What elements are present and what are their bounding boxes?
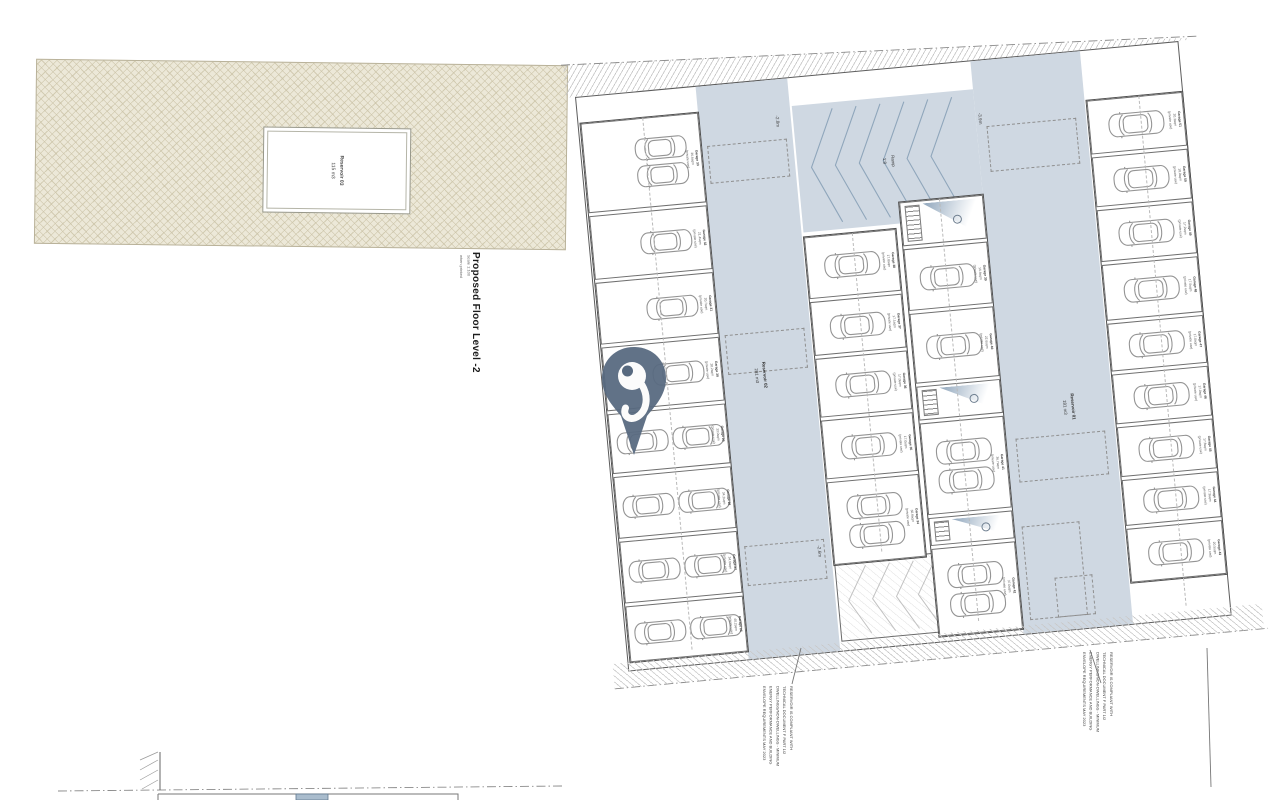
- garage-label: Garage 5018.0sqm(private use): [1172, 165, 1188, 185]
- car-icon: [1127, 327, 1187, 359]
- garage-label: Garage 4617.0sqm(private use): [1192, 382, 1208, 402]
- car-icon: [1137, 432, 1197, 464]
- garage-label: Garage 4022.6sqm(private use): [978, 332, 994, 352]
- garage-label: Garage 4320.5sqm(private use): [1206, 538, 1222, 558]
- car-icon: [1146, 535, 1206, 567]
- garage-label: Garage 4517.8sqm(private use): [1197, 435, 1213, 455]
- level-marker: -2.6m: [816, 545, 822, 557]
- drawing-scale: Scale 1:100 when printed: [458, 255, 472, 278]
- garage-bay: Garage 4717.0sqm(private use): [1107, 315, 1207, 372]
- garage-label: Garage 3517.0sqm(private use): [897, 433, 913, 453]
- reservoir-03-box: Reservoir 03 115 m3: [262, 127, 411, 215]
- reservoir-01-name: Reservoir 01: [1067, 393, 1077, 420]
- garage-label: Garage 4717.0sqm(private use): [1187, 330, 1203, 350]
- garage-bay: Garage 4617.0sqm(private use): [1112, 366, 1212, 425]
- car-icon: [645, 292, 701, 322]
- garage-label: Garage 4917.2sqm(private use): [1177, 218, 1193, 238]
- garage-label: Garage 3617.0sqm(private use): [891, 371, 907, 391]
- reservoir-03-volume: 115 m3: [328, 155, 337, 185]
- lower-ramp: [834, 552, 947, 641]
- car-icon: [1142, 482, 1202, 514]
- garage-label: Garage 2640.2sqm(private use): [727, 615, 743, 635]
- note-line: RESERVOIR IS COMPLIANT WITH: [1107, 652, 1114, 764]
- car-icon: [1132, 379, 1192, 411]
- compliance-note: RESERVOIR IS COMPLIANT WITH TECHNICAL DO…: [1080, 652, 1114, 764]
- hatched-site-parcel: Reservoir 03 115 m3: [34, 59, 568, 250]
- ramp-label: Ramp 1:8: [879, 154, 897, 167]
- garage-bay: Garage 4417.9sqm(private use): [1122, 471, 1222, 526]
- level-marker: -3.9m: [977, 112, 983, 124]
- boundary-hatch-top: [563, 5, 1190, 98]
- garage-bay: Garage 4517.8sqm(private use): [1117, 418, 1217, 477]
- reservoir-01-outline: [1054, 574, 1096, 617]
- level-circle: [969, 394, 979, 404]
- reservoir-02-label: Reservoir 02 281 m3: [751, 361, 769, 389]
- garage-label: Garage 2834.2sqm(private use): [716, 488, 732, 508]
- garage-label: Garage 3120.7sqm(private use): [698, 294, 714, 314]
- note-line: ENVELOPE REQUIREMENTS MAY 2023: [760, 686, 767, 798]
- scale-note: when printed: [458, 255, 465, 278]
- garage-bay: Garage 4917.2sqm(private use): [1097, 201, 1197, 262]
- garage-bay: Garage 4320.5sqm(private use): [1126, 520, 1227, 583]
- car-icon: [636, 160, 692, 190]
- reservoir-02-outline: [707, 139, 790, 184]
- note-line: ENERGY PERFORMANCE AND BUILDING: [767, 686, 774, 798]
- note-line: ENERGY PERFORMANCE AND BUILDING: [1087, 652, 1094, 764]
- reservoir-03-label: Reservoir 03 115 m3: [328, 155, 345, 185]
- garage-bay: Garage 5120.3sqm(private use): [1087, 92, 1188, 155]
- lower-ramp-chevrons: [835, 553, 946, 640]
- car-icon: [627, 555, 683, 585]
- parked-cars: [629, 599, 745, 659]
- garage-label: Garage 2933.0sqm(private use): [710, 424, 726, 444]
- note-line: ENVELOPE REQUIREMENTS MAY 2023: [1080, 652, 1087, 764]
- garage-label: Garage 4136.7sqm(private use): [989, 453, 1005, 473]
- garage-label: Garage 3430.8sqm(private use): [904, 506, 920, 526]
- stair-icon: [934, 520, 951, 541]
- car-icon: [633, 616, 689, 646]
- car-icon: [633, 133, 689, 163]
- garage-label: Garage 3717.1sqm(private use): [886, 312, 902, 332]
- location-pin-icon[interactable]: [598, 345, 670, 457]
- garage-label: Garage 3221.4sqm(private use): [691, 228, 707, 248]
- reservoir-01-outline: [1015, 430, 1109, 482]
- ramp-label-text: Ramp: [888, 154, 897, 166]
- car-icon: [639, 226, 695, 256]
- car-icon: [1122, 272, 1182, 304]
- compliance-note: RESERVOIR IS COMPLIANT WITH TECHNICAL DO…: [760, 686, 794, 798]
- scale-text: Scale 1:100: [465, 255, 472, 278]
- garage-label: Garage 2734.6sqm(private use): [722, 553, 738, 573]
- garage-bay: Garage 4136.7sqm(private use): [920, 416, 1012, 515]
- garage-label: Garage 3916.6sqm(private use): [972, 264, 988, 284]
- note-line: TECHNICAL DOCUMENT F PART 1/2: [780, 686, 787, 798]
- garage-label: Garage 4417.9sqm(private use): [1201, 485, 1217, 505]
- garage-label: Garage 3817.8sqm(private use): [880, 251, 896, 271]
- level-circle: [981, 522, 991, 532]
- level-marker: -2.8m: [775, 115, 781, 127]
- garage-label: Garage 4817.5sqm(private use): [1182, 275, 1198, 295]
- note-line: TECHNICAL DOCUMENT F PART 1/2: [1100, 652, 1107, 764]
- reservoir-01-outline: [986, 118, 1080, 172]
- garage-label: Garage 3336.6sqm(private use): [684, 149, 700, 169]
- garage-bay: Garage 4237.0sqm(private use): [931, 541, 1023, 636]
- note-line: DWELLINGS/NON-DWELLINGS - MINIMUM: [1094, 652, 1101, 764]
- car-icon: [1107, 107, 1167, 139]
- reservoir-03-name: Reservoir 03: [337, 155, 346, 185]
- garage-plan-block: Reservoir 02 281 m3 Reservoir 01 181 m3: [575, 41, 1232, 672]
- stair-icon: [922, 389, 939, 416]
- floor-plan-page: Reservoir 03 115 m3 Proposed Floor Level…: [0, 0, 1282, 800]
- garage-label: Garage 3020.2sqm(private use): [704, 360, 720, 380]
- car-icon: [1117, 216, 1177, 248]
- reservoir-02-outline: [744, 539, 827, 586]
- garage-label: Garage 4237.0sqm(private use): [1001, 576, 1017, 596]
- garage-bay: Garage 4817.5sqm(private use): [1102, 256, 1203, 321]
- note-line: RESERVOIR IS COMPLIANT WITH: [787, 686, 794, 798]
- garage-label: Garage 5120.3sqm(private use): [1167, 110, 1183, 130]
- garage-bay: Garage 5018.0sqm(private use): [1092, 149, 1192, 208]
- stair-icon: [904, 205, 922, 242]
- car-icon: [621, 490, 677, 520]
- reservoir-01-label: Reservoir 01 181 m3: [1060, 393, 1078, 421]
- car-icon: [1112, 162, 1172, 194]
- note-line: DWELLINGS/NON-DWELLINGS - MINIMUM: [774, 686, 781, 798]
